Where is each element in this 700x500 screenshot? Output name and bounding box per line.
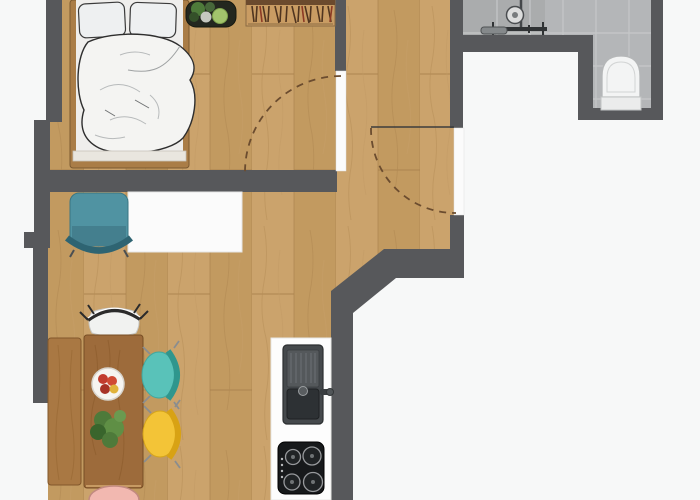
double-bed <box>70 0 195 168</box>
toilet <box>601 56 641 110</box>
pillow-left <box>78 2 126 38</box>
wall-bedroom-doorway <box>335 0 346 71</box>
toilet-tank <box>601 97 641 110</box>
kitchen <box>271 338 334 500</box>
wall-left-lower <box>33 246 48 403</box>
wall-left-upper <box>46 0 62 122</box>
plant-foliage <box>102 432 118 448</box>
wall-left-step <box>24 232 50 248</box>
shower-head-center <box>512 12 518 18</box>
entry-door-opening <box>454 128 464 215</box>
plant-foliage <box>114 410 126 422</box>
wall-bedroom-partition <box>44 170 337 192</box>
wall-bathroom-mid <box>578 35 593 120</box>
wall-right-upper <box>450 0 463 128</box>
clothes-rack <box>246 0 335 26</box>
hand-shower <box>481 27 507 34</box>
fruit-icon <box>107 376 117 386</box>
desk-chair <box>67 193 131 257</box>
sink-drain <box>299 387 308 396</box>
wall-bathroom-south <box>456 35 580 52</box>
fruit-bowl <box>92 368 124 400</box>
wall-bathroom-right <box>651 0 663 120</box>
dining-table <box>84 335 143 488</box>
sink-drainboard <box>287 350 319 387</box>
bed-footboard <box>73 151 186 161</box>
fruit-icon <box>100 384 110 394</box>
fruit-icon <box>110 385 119 394</box>
floor-plan-image <box>0 0 700 500</box>
pillow-right <box>129 2 176 38</box>
cooktop <box>278 442 324 494</box>
plant-side-table <box>186 1 236 27</box>
decor-ball-icon <box>201 12 212 23</box>
bench <box>48 338 81 485</box>
bedroom-door-opening <box>336 71 346 171</box>
desk <box>128 192 242 252</box>
plant-icon <box>189 12 199 22</box>
faucet-handle <box>327 389 334 396</box>
plant-ball-icon <box>213 9 228 24</box>
fruit-icon <box>98 374 108 384</box>
rack-rail <box>246 0 335 5</box>
plant-icon <box>205 2 215 12</box>
